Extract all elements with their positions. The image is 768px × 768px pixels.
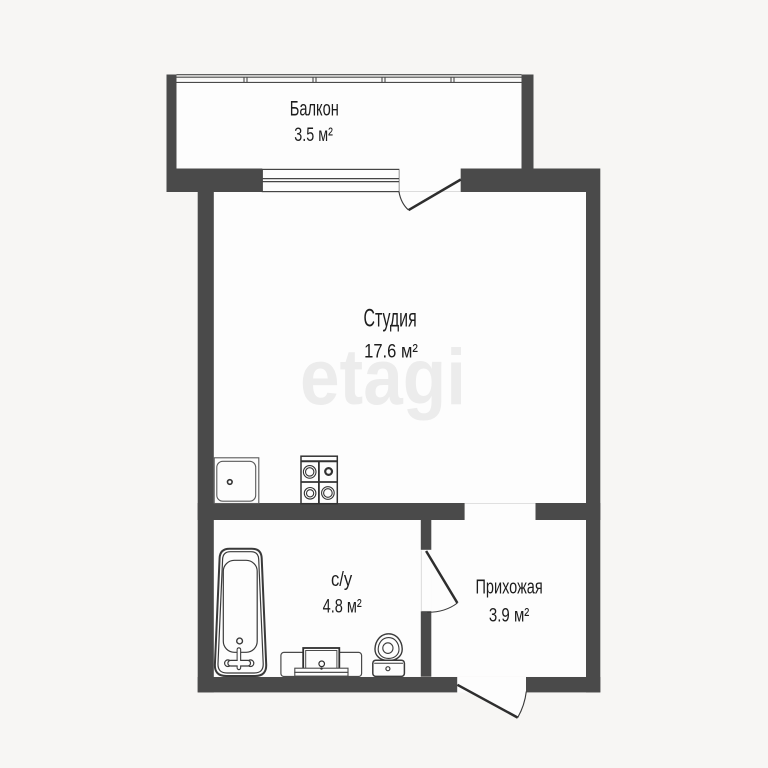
svg-text:с/у: с/у xyxy=(331,569,352,591)
svg-text:4.8 м²: 4.8 м² xyxy=(323,596,362,617)
svg-text:17.6 м²: 17.6 м² xyxy=(364,342,418,363)
svg-text:3.5 м²: 3.5 м² xyxy=(294,125,333,146)
svg-text:3.9 м²: 3.9 м² xyxy=(489,606,529,627)
svg-text:Прихожая: Прихожая xyxy=(475,575,542,598)
svg-text:Студия: Студия xyxy=(364,305,417,333)
svg-text:Балкон: Балкон xyxy=(290,98,339,121)
